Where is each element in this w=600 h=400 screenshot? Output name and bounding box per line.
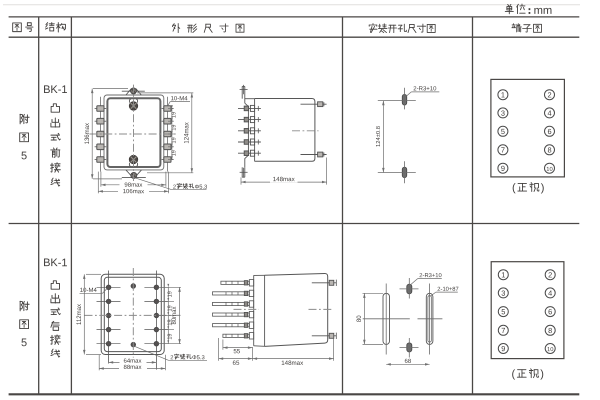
svg-text:4: 4 <box>547 109 551 118</box>
svg-text:2: 2 <box>173 185 176 191</box>
svg-text:(: ( <box>512 182 516 194</box>
svg-text:112max: 112max <box>77 304 83 325</box>
svg-text:BK-1: BK-1 <box>43 84 67 96</box>
svg-text:5: 5 <box>21 150 27 162</box>
svg-text:80max: 80max <box>172 306 178 324</box>
svg-text:3: 3 <box>501 109 505 118</box>
svg-text:124max: 124max <box>184 122 190 143</box>
svg-text:8: 8 <box>548 326 552 335</box>
svg-text:2: 2 <box>547 90 551 99</box>
svg-text:19: 19 <box>168 291 174 297</box>
svg-text:8: 8 <box>547 145 551 154</box>
svg-text:Φ5.3: Φ5.3 <box>195 185 208 191</box>
svg-text:9: 9 <box>501 164 505 173</box>
svg-text:): ) <box>541 182 545 194</box>
svg-text:6: 6 <box>547 127 551 136</box>
svg-text:65: 65 <box>233 360 240 367</box>
svg-text:1: 1 <box>501 90 505 99</box>
svg-text:19: 19 <box>171 112 177 118</box>
svg-text:2: 2 <box>548 270 552 279</box>
svg-text:19: 19 <box>171 125 177 131</box>
svg-text:BK-1: BK-1 <box>43 257 67 269</box>
svg-text:4: 4 <box>548 289 552 298</box>
svg-text:mm: mm <box>534 5 553 17</box>
svg-text:7: 7 <box>501 326 505 335</box>
svg-text:68: 68 <box>405 359 412 365</box>
svg-text:5: 5 <box>501 127 505 136</box>
svg-text:19: 19 <box>171 150 177 156</box>
svg-text:136max: 136max <box>85 123 91 144</box>
svg-text:1: 1 <box>501 270 505 279</box>
svg-text:10: 10 <box>547 347 553 353</box>
svg-text:19: 19 <box>168 334 174 340</box>
svg-text:2-R3+10: 2-R3+10 <box>413 86 437 92</box>
svg-text:6: 6 <box>548 307 552 316</box>
svg-text:148max: 148max <box>273 176 296 183</box>
svg-text:7: 7 <box>501 145 505 154</box>
svg-text:5: 5 <box>21 337 27 349</box>
svg-text:Φ5.3: Φ5.3 <box>192 355 205 361</box>
svg-text:3: 3 <box>501 289 505 298</box>
svg-text:(: ( <box>511 368 515 380</box>
svg-text:5: 5 <box>501 307 505 316</box>
svg-text:124±0.8: 124±0.8 <box>376 126 382 147</box>
svg-text:55: 55 <box>233 348 240 355</box>
svg-text:64max: 64max <box>123 359 141 365</box>
svg-text:106max: 106max <box>123 189 144 195</box>
svg-text:9: 9 <box>501 344 505 353</box>
svg-text:2: 2 <box>170 355 173 361</box>
svg-text:148max: 148max <box>281 360 304 367</box>
svg-text:): ) <box>540 368 544 380</box>
svg-text:80: 80 <box>357 315 363 322</box>
svg-text:10: 10 <box>546 167 552 173</box>
svg-text:19: 19 <box>171 137 177 143</box>
svg-text:88max: 88max <box>123 365 141 371</box>
